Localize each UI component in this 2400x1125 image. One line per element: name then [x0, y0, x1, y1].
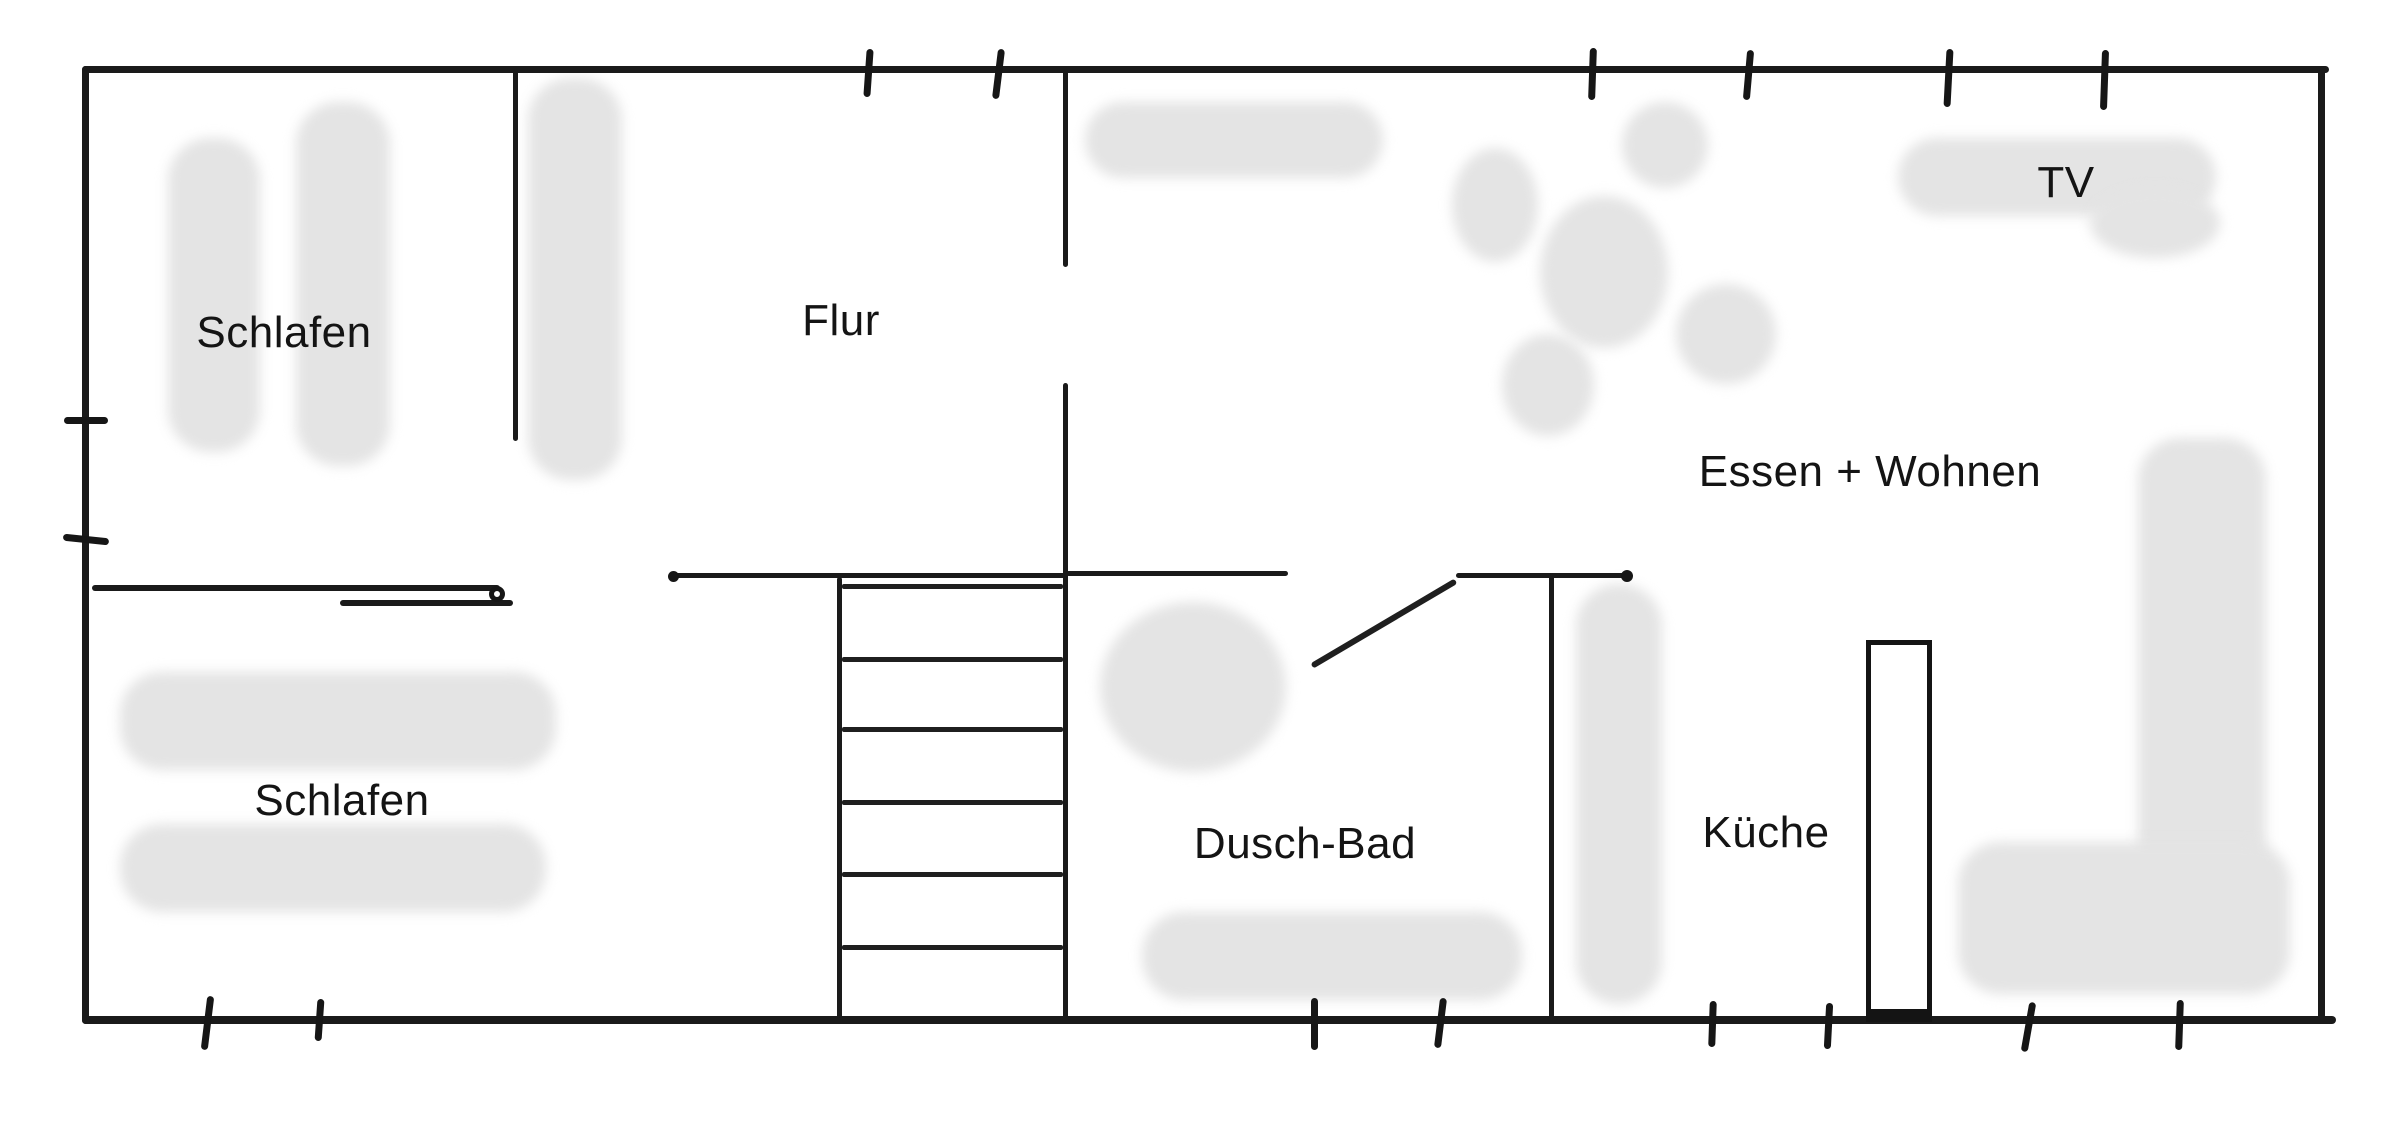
tick-top-2 — [992, 49, 1005, 99]
sofa-back — [2138, 438, 2266, 906]
wall-flur-wohnen-upper — [1063, 69, 1068, 267]
bed-strip-2 — [296, 102, 390, 466]
room-label-flur: Flur — [802, 296, 880, 346]
wall-end-dot-2 — [1621, 570, 1633, 582]
sliding-door-handle — [489, 586, 505, 602]
room-label-schlafen-2: Schlafen — [254, 776, 429, 826]
sofa-seat — [1958, 842, 2290, 994]
bath-strip — [1142, 912, 1522, 1000]
room-label-kueche: Küche — [1702, 808, 1829, 858]
dining-chair-right — [1676, 284, 1776, 384]
tick-bottom-2 — [315, 999, 325, 1041]
wardrobe-strip — [528, 78, 622, 480]
tick-bottom-7 — [2021, 1002, 2037, 1052]
wall-flur-wohnen-lower — [1063, 383, 1068, 1021]
shower — [1100, 602, 1286, 772]
sliding-door-track — [92, 585, 500, 591]
stair-tread-2 — [842, 657, 1063, 662]
sideboard — [1085, 102, 1383, 178]
tick-bottom-3 — [1311, 998, 1318, 1050]
outer-wall-left — [82, 66, 89, 1024]
tick-bottom-5 — [1708, 1001, 1717, 1047]
dining-chair-bottom — [1502, 334, 1594, 436]
tick-top-3 — [1588, 48, 1597, 100]
room-label-tv: TV — [2037, 158, 2094, 208]
tick-bottom-8 — [2175, 1000, 2184, 1050]
stair-tread-5 — [842, 872, 1063, 877]
outer-wall-right — [2318, 66, 2325, 1024]
tick-top-4 — [1743, 50, 1754, 100]
room-label-essen-wohnen: Essen + Wohnen — [1699, 447, 2042, 497]
wall-bad-right — [1549, 573, 1554, 1021]
tick-top-1 — [863, 49, 873, 97]
bed-strip-1 — [168, 138, 260, 452]
stair-tread-4 — [842, 800, 1063, 805]
dining-chair-top — [1622, 102, 1708, 188]
stair-left-rail — [837, 577, 842, 1021]
dining-chair-left — [1452, 148, 1538, 262]
bed-strip-3 — [120, 672, 556, 770]
wall-bad-entry-left — [1066, 571, 1288, 576]
room-label-dusch-bad: Dusch-Bad — [1194, 819, 1416, 869]
tick-top-5 — [1943, 49, 1953, 107]
tick-left-1 — [64, 417, 108, 424]
outer-wall-top — [82, 66, 2329, 73]
kitchen-counter-unit — [1866, 640, 1932, 1022]
room-label-schlafen-1: Schlafen — [196, 308, 371, 358]
wall-bad-entry-right — [1456, 573, 1628, 578]
stair-tread-1 — [842, 584, 1063, 589]
tick-top-6 — [2100, 50, 2109, 110]
tick-bottom-6 — [1824, 1003, 1833, 1049]
outer-wall-bottom — [82, 1016, 2336, 1024]
wall-schlafen-flur — [513, 69, 518, 441]
sliding-door-panel — [340, 600, 513, 606]
kitchen-strip — [1576, 584, 1662, 1004]
stair-tread-6 — [842, 945, 1063, 950]
wall-end-dot-1 — [668, 571, 679, 582]
bed-strip-4 — [120, 824, 546, 912]
wall-hall-top — [671, 573, 1068, 578]
stair-tread-3 — [842, 727, 1063, 732]
dining-table — [1540, 196, 1668, 348]
floor-plan: Schlafen Flur TV Essen + Wohnen Schlafen… — [0, 0, 2400, 1125]
bath-door-leaf — [1310, 578, 1457, 668]
tv-board-end — [2090, 188, 2220, 258]
